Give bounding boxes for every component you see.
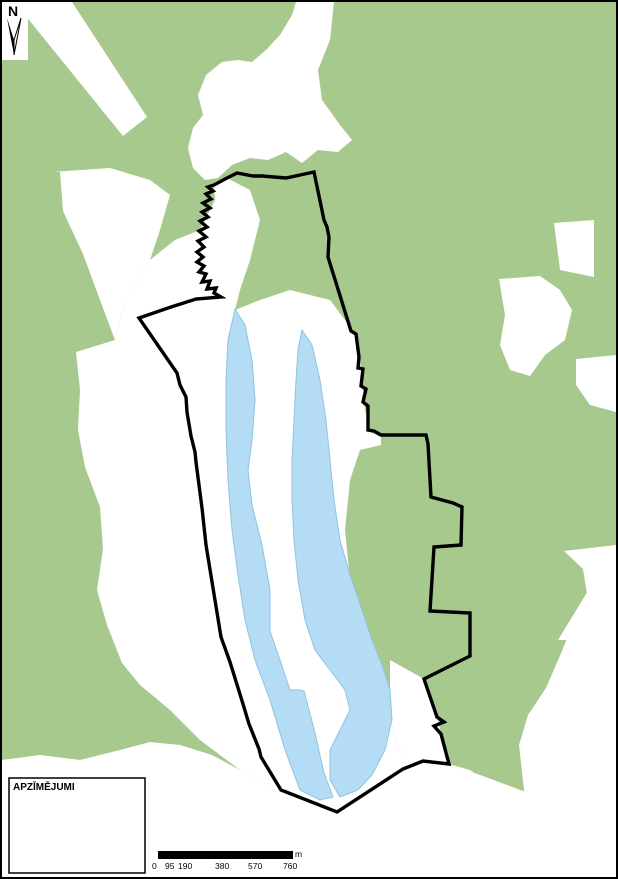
svg-text:190: 190: [178, 861, 192, 871]
svg-text:m: m: [295, 849, 302, 859]
svg-text:APZĪMĒJUMI: APZĪMĒJUMI: [13, 781, 75, 793]
svg-text:N: N: [8, 3, 18, 19]
svg-text:760: 760: [283, 861, 297, 871]
svg-text:0: 0: [152, 861, 157, 871]
svg-text:570: 570: [248, 861, 262, 871]
svg-text:380: 380: [215, 861, 229, 871]
svg-text:95: 95: [165, 861, 175, 871]
